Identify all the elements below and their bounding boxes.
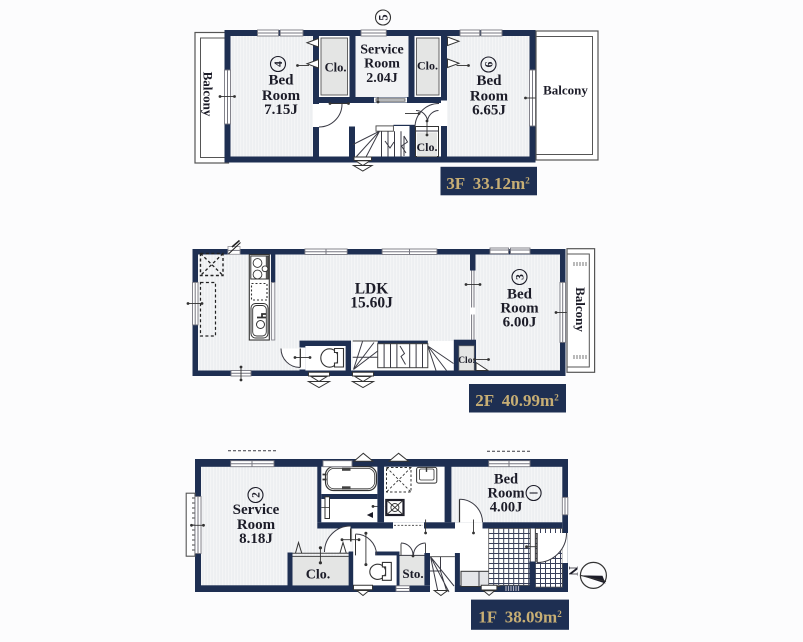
svg-text:4.00J: 4.00J xyxy=(490,500,523,516)
svg-text:6.00J: 6.00J xyxy=(503,315,537,331)
svg-text:5: 5 xyxy=(376,14,390,20)
svg-text:Balcony: Balcony xyxy=(573,287,588,332)
svg-text:Sto.: Sto. xyxy=(402,566,423,581)
svg-text:8.18J: 8.18J xyxy=(239,531,273,547)
svg-text:2F 40.99m2: 2F 40.99m2 xyxy=(475,391,559,410)
svg-text:Bed: Bed xyxy=(268,73,294,89)
svg-text:1F 38.09m2: 1F 38.09m2 xyxy=(478,608,562,627)
svg-text:Clo.: Clo. xyxy=(417,59,438,73)
svg-text:Room: Room xyxy=(364,57,400,72)
svg-text:Service: Service xyxy=(233,502,280,518)
svg-text:2: 2 xyxy=(251,492,263,498)
svg-text:7.15J: 7.15J xyxy=(264,102,298,118)
svg-text:N: N xyxy=(566,566,581,576)
svg-text:Clo.: Clo. xyxy=(417,140,438,154)
svg-text:Clo.: Clo. xyxy=(458,356,475,366)
svg-text:Balcony: Balcony xyxy=(201,72,216,117)
svg-text:Service: Service xyxy=(360,43,404,58)
svg-text:15.60J: 15.60J xyxy=(350,295,393,312)
svg-text:Clo.: Clo. xyxy=(325,61,347,75)
svg-text:6.65J: 6.65J xyxy=(472,103,506,119)
svg-text:Bed: Bed xyxy=(476,73,502,89)
svg-text:3F 33.12m2: 3F 33.12m2 xyxy=(446,174,530,193)
svg-text:Balcony: Balcony xyxy=(543,83,588,98)
svg-text:4: 4 xyxy=(273,61,285,67)
svg-text:6: 6 xyxy=(484,61,496,67)
svg-text:Clo.: Clo. xyxy=(306,568,331,583)
svg-text:3: 3 xyxy=(515,274,527,280)
svg-text:2.04J: 2.04J xyxy=(366,71,398,86)
